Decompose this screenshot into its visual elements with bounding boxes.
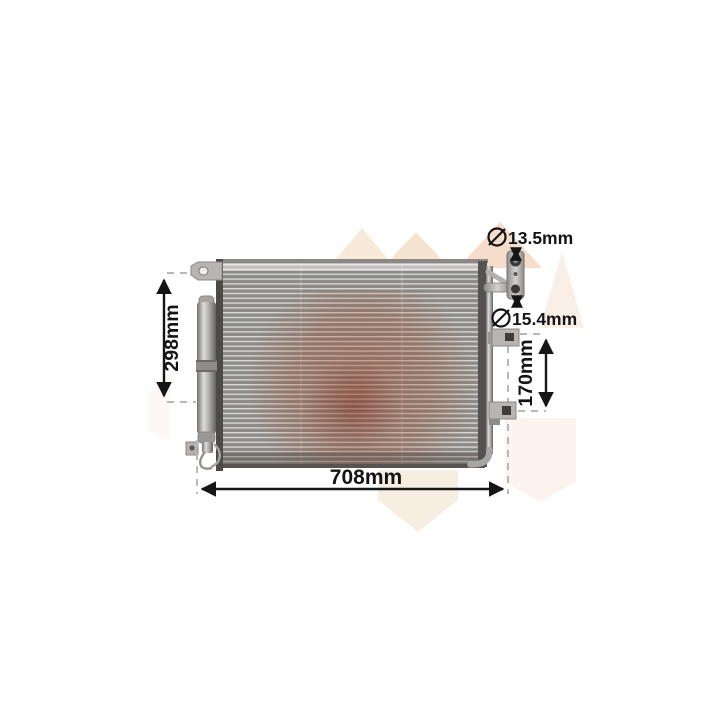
- product-image: 13.5mm 15.4mm 298mm 170mm 708mm: [0, 0, 720, 720]
- label-bracket-span: 170mm: [515, 339, 537, 406]
- port-hole-center: [513, 259, 517, 263]
- bracket-hole: [199, 267, 208, 275]
- label-width: 708mm: [330, 466, 402, 489]
- watermark-facet: [148, 372, 170, 440]
- label-height: 298mm: [161, 304, 183, 371]
- bolt-hole: [514, 272, 518, 276]
- drier-bottom-cap: [198, 432, 215, 443]
- drier-band-line: [196, 370, 217, 372]
- bracket-foot: [489, 419, 500, 425]
- side-plate-left: [216, 259, 223, 471]
- condenser-body: [216, 259, 488, 471]
- condenser-diagram: 13.5mm 15.4mm 298mm 170mm 708mm: [0, 0, 720, 720]
- drier-band-line: [196, 360, 217, 362]
- drier-stub: [202, 442, 213, 453]
- bracket-hole: [502, 406, 511, 415]
- diameter-icon: [493, 310, 510, 327]
- bracket-hole: [505, 333, 514, 341]
- label-port-top-diameter: 13.5mm: [508, 228, 573, 248]
- label-port-bottom-diameter: 15.4mm: [512, 309, 577, 329]
- core-top-highlight: [222, 262, 480, 271]
- bracket-hole: [189, 445, 194, 450]
- core-top-edge: [216, 259, 488, 263]
- drier-tube: [200, 452, 212, 469]
- side-plate-right: [478, 261, 487, 467]
- watermark-facet: [505, 418, 576, 502]
- pipe-vertical: [486, 266, 493, 454]
- port-hole-15-4: [511, 285, 520, 294]
- core-bottom-tank: [219, 452, 483, 465]
- watermark-tint-overlay: [300, 350, 430, 462]
